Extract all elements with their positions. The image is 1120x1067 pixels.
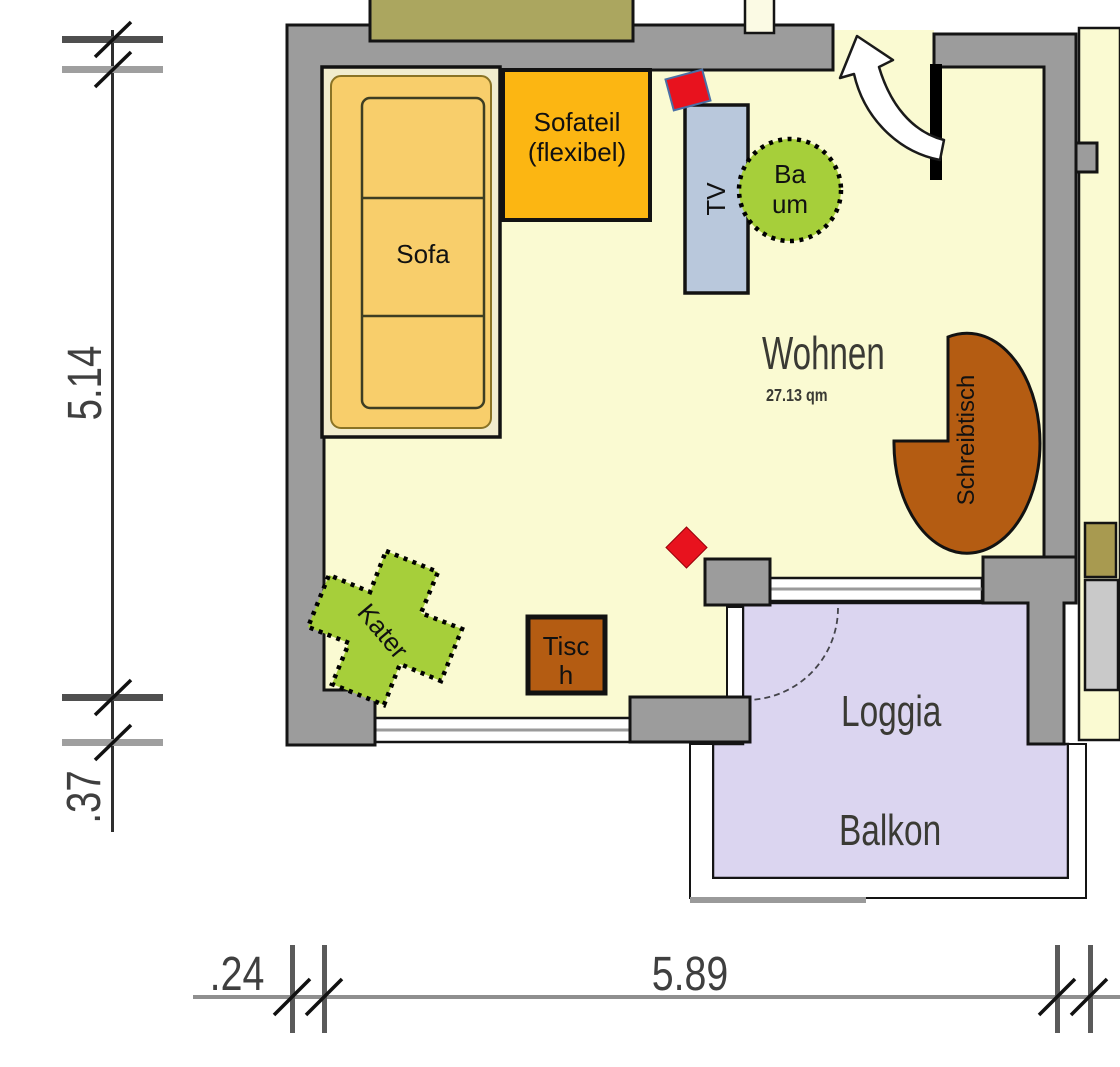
tisch-label-line2: h — [559, 660, 573, 690]
sofateil-label-line1: Sofateil — [534, 107, 621, 137]
dim-label-37: .37 — [58, 770, 111, 823]
floorplan-drawing: Sofa Sofateil (flexibel) TV Ba um Kater … — [0, 0, 1120, 1067]
dim-tick — [322, 945, 327, 1033]
wall-south-pillar — [630, 697, 750, 742]
baum-label-line2: um — [772, 189, 808, 219]
dim-tick — [1055, 945, 1060, 1033]
schreibtisch-label: Schreibtisch — [953, 375, 980, 506]
tisch-label-line1: Tisc — [543, 631, 590, 661]
dim-tick — [1088, 945, 1093, 1033]
upper-opening-notch — [745, 0, 774, 33]
wohnen-area-label: 27.13 qm — [766, 386, 828, 406]
wall-balcony-pillar — [705, 559, 770, 605]
dim-label-5-14: 5.14 — [59, 346, 112, 421]
side-room-objects — [1085, 523, 1118, 690]
sofateil-label-line2: (flexibel) — [528, 137, 626, 167]
balkon-label: Balkon — [839, 807, 941, 855]
balcony-bottom-shadow — [690, 897, 866, 903]
dim-label-24: .24 — [210, 947, 265, 1001]
side-room-cabinet — [1085, 523, 1116, 577]
baum-label-line1: Ba — [774, 159, 806, 189]
dim-label-5-89: 5.89 — [652, 947, 729, 1001]
side-room-appliance — [1085, 580, 1118, 690]
tv-label: TV — [701, 182, 731, 216]
wall-stub-side-room — [1076, 143, 1097, 172]
loggia-label: Loggia — [841, 688, 942, 736]
upper-cabinet-cutoff — [370, 0, 633, 41]
floorplan-canvas: Sofa Sofateil (flexibel) TV Ba um Kater … — [0, 0, 1120, 1067]
wohnen-room-label: Wohnen — [762, 329, 885, 379]
dim-tick — [290, 945, 295, 1033]
balcony-door-leaf — [727, 607, 743, 697]
sofa-label: Sofa — [396, 239, 450, 269]
dim-line-left — [111, 30, 114, 832]
entry-door-leaf — [930, 64, 942, 180]
